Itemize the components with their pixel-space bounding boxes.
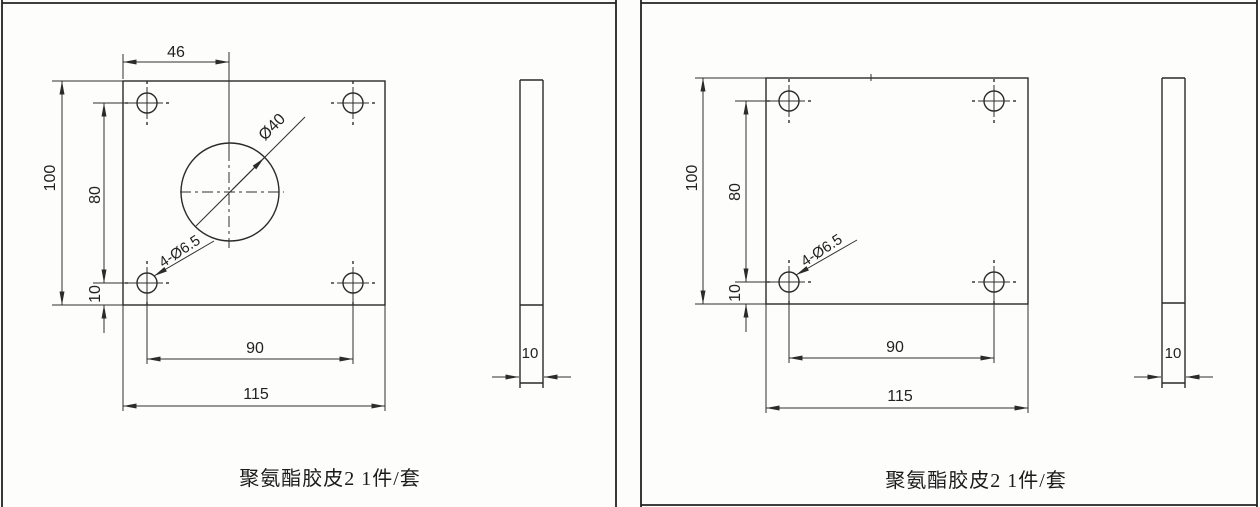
dim-hole-col-spacing: 90	[789, 290, 994, 363]
left-side-view: 10	[492, 80, 571, 388]
dim-thickness-label: 10	[522, 345, 539, 362]
left-sheet-caption: 聚氨酯胶皮2 1件/套	[239, 467, 421, 490]
dim-hole-row-spacing-label: 80	[727, 183, 744, 201]
right-sheet-caption: 聚氨酯胶皮2 1件/套	[885, 469, 1067, 492]
dim-plate-height: 100	[42, 81, 123, 305]
dim-hole-row-spacing: 80	[87, 103, 133, 283]
dim-hole-bottom-offset-label: 10	[87, 285, 104, 303]
drawing-page: Ø40 46 100 80	[0, 0, 1260, 507]
dim-plate-width-label: 115	[243, 386, 269, 403]
dim-hole-row-spacing-label: 80	[87, 186, 104, 204]
dim-thickness-label: 10	[1165, 345, 1182, 362]
dim-hole-col-spacing-label: 90	[246, 340, 264, 357]
dim-hole-bottom-offset-label: 10	[727, 284, 744, 302]
dim-hole-offset-top-label: 46	[167, 44, 185, 61]
dim-hole-col-spacing-label: 90	[886, 339, 904, 356]
dim-thickness: 10	[492, 345, 571, 377]
dim-hole-bottom-offset: 10	[87, 285, 104, 333]
dim-hole-bottom-offset: 10	[727, 284, 746, 332]
dim-hole-row-spacing: 80	[727, 101, 775, 282]
left-front-view: Ø40 46 100 80	[42, 44, 385, 411]
center-hole-diameter-label: Ø40	[256, 111, 289, 144]
left-sheet: Ø40 46 100 80	[2, 0, 616, 507]
corner-hole-callout: 4-Ø6.5	[796, 231, 857, 275]
dim-hole-col-spacing: 90	[147, 291, 353, 364]
right-side-view: 10	[1134, 78, 1213, 388]
right-sheet: 100 80 10 4-Ø6.5	[641, 0, 1257, 507]
dim-plate-height-label: 100	[42, 165, 59, 192]
dim-hole-offset-top: 46	[123, 44, 229, 79]
corner-hole-callout: 4-Ø6.5	[154, 232, 214, 276]
dim-plate-width-label: 115	[887, 388, 913, 405]
dim-thickness: 10	[1134, 345, 1213, 377]
dim-plate-width: 115	[123, 305, 385, 411]
left-sheet-border	[2, 0, 616, 507]
dim-plate-height-label: 100	[684, 165, 701, 192]
engineering-drawing: Ø40 46 100 80	[0, 0, 1260, 507]
right-front-view: 100 80 10 4-Ø6.5	[684, 74, 1028, 413]
dim-plate-height: 100	[684, 78, 766, 304]
right-sheet-border	[641, 0, 1257, 507]
